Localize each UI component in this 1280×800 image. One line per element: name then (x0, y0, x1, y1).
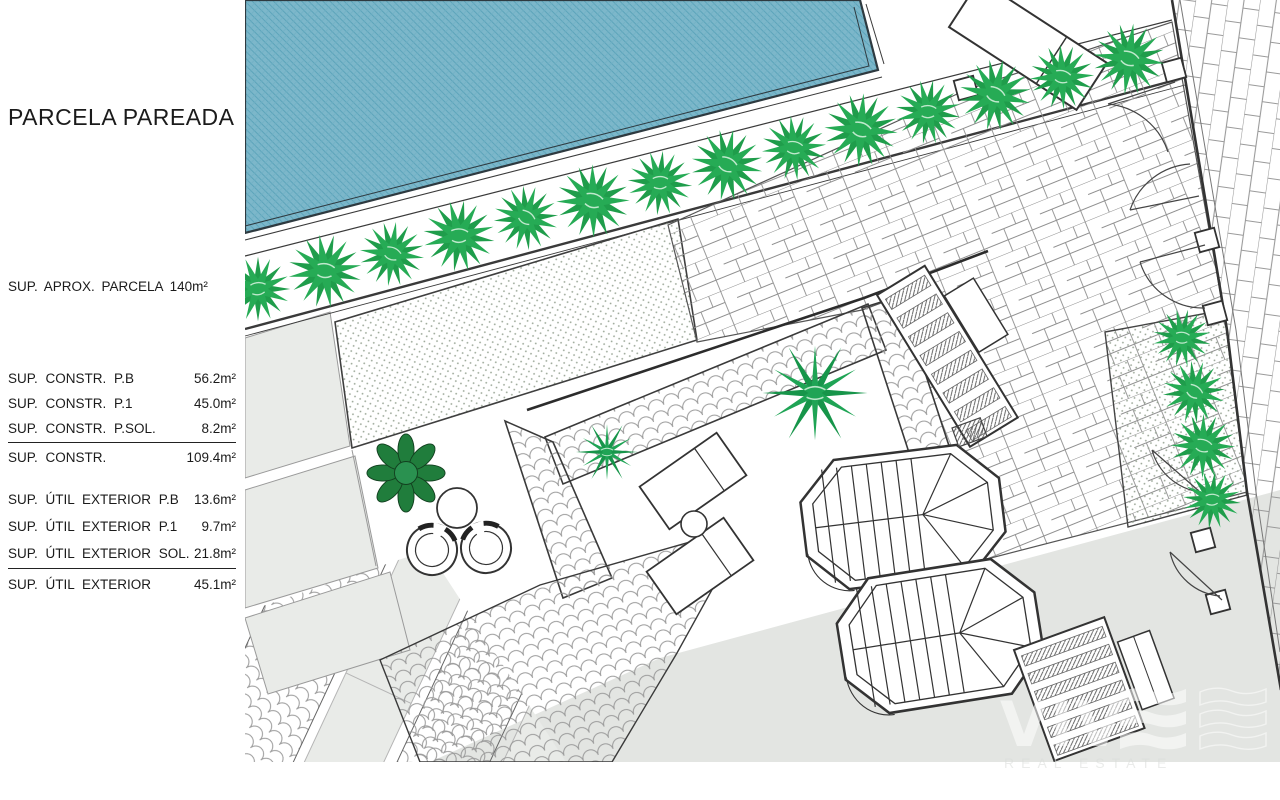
sum-rule (8, 442, 236, 443)
sum-rule (8, 568, 236, 569)
table-row: SUP. CONSTR. P.SOL. 8.2m² (8, 416, 236, 441)
table-row: SUP. ÚTIL EXTERIOR P.B 13.6m² (8, 486, 236, 513)
exterior-area-table: SUP. ÚTIL EXTERIOR P.B 13.6m² SUP. ÚTIL … (8, 486, 236, 598)
side-table (681, 511, 707, 537)
measurements-panel: PARCELA PAREADA SUP. APROX. PARCELA 140m… (0, 0, 245, 800)
table-row: SUP. CONSTR. P.1 45.0m² (8, 391, 236, 416)
round-table (437, 488, 477, 528)
page-title: PARCELA PAREADA (8, 104, 235, 131)
parcel-approx-area: SUP. APROX. PARCELA 140m² (8, 279, 208, 294)
watermark-letters: VIV (1000, 688, 1125, 761)
watermark-tagline: REAL ESTATE (1004, 755, 1173, 771)
table-row: SUP. ÚTIL EXTERIOR SOL. 21.8m² (8, 540, 236, 567)
table-row: SUP. ÚTIL EXTERIOR P.1 9.7m² (8, 513, 236, 540)
table-total-row: SUP. CONSTR. 109.4m² (8, 445, 236, 470)
table-row: SUP. CONSTR. P.B 56.2m² (8, 366, 236, 391)
constructed-area-table: SUP. CONSTR. P.B 56.2m² SUP. CONSTR. P.1… (8, 366, 236, 470)
tree-icon (367, 434, 445, 512)
table-total-row: SUP. ÚTIL EXTERIOR 45.1m² (8, 571, 236, 598)
site-plan-page: VIV REAL ESTATE PARCELA PAREADA SUP. APR… (0, 0, 1280, 800)
watermark-e-bars (1120, 688, 1186, 749)
